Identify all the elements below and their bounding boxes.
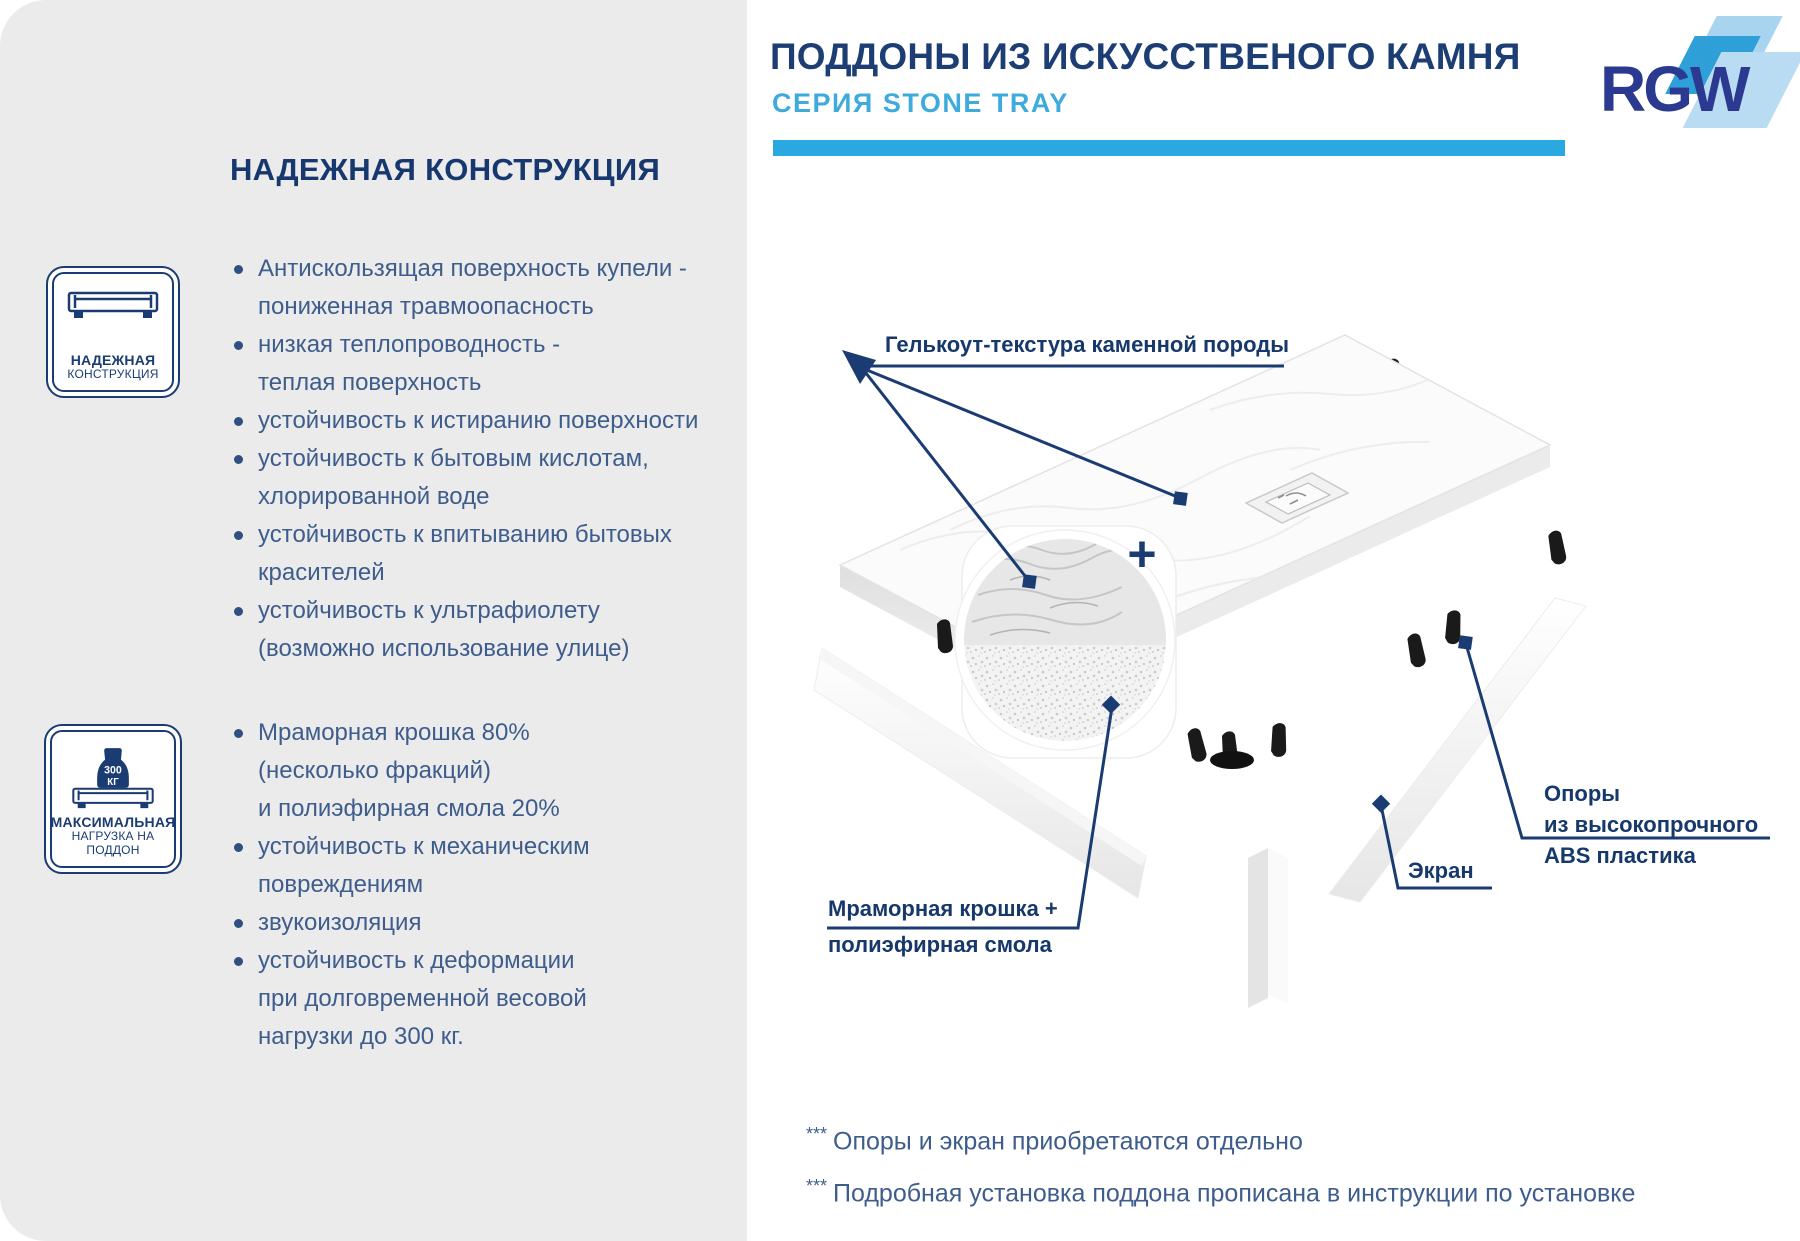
feature-item: низкая теплопроводность - теплая поверхн… [228, 326, 708, 402]
footnote-2: ***Подробная установка поддона прописана… [806, 1176, 1635, 1208]
support-leg [1187, 727, 1208, 763]
max-load-badge-inner: 300 КГ МАКСИМАЛЬНАЯ НАГРУЗКА НА П [50, 730, 176, 868]
label-marble-chips: Мраморная крошка + полиэфирная смола [828, 894, 1058, 960]
badge1-line2: КОНСТРУКЦИЯ [67, 368, 158, 382]
weight-300kg-icon: 300 КГ [63, 742, 163, 814]
label-screen: Экран [1408, 856, 1474, 886]
feature-list-construction: Антискользящая поверхность купели - пони… [228, 250, 708, 668]
weight-unit-text: КГ [107, 777, 119, 788]
accent-bar [773, 140, 1565, 156]
feature-item: звукоизоляция [228, 904, 708, 942]
tray-profile-icon [66, 284, 160, 324]
footnote-1: ***Опоры и экран приобретаются отдельно [806, 1124, 1303, 1156]
reliable-construction-badge-inner: НАДЕЖНАЯ КОНСТРУКЦИЯ [52, 272, 174, 392]
support-leg [1270, 722, 1289, 757]
support-leg [1548, 530, 1567, 565]
left-panel: НАДЕЖНАЯ КОНСТРУКЦИЯ НАДЕЖНАЯ КОНСТРУКЦИ… [0, 0, 747, 1241]
feature-item: Мраморная крошка 80% (несколько фракций)… [228, 714, 708, 828]
max-load-badge-text: МАКСИМАЛЬНАЯ НАГРУЗКА НА ПОДДОН [51, 814, 176, 858]
reliable-construction-badge: НАДЕЖНАЯ КОНСТРУКЦИЯ [46, 266, 180, 398]
page-subtitle: СЕРИЯ STONE TRAY [772, 88, 1069, 119]
support-foot [1210, 731, 1254, 769]
feature-item: устойчивость к механическим повреждениям [228, 828, 708, 904]
feature-list-material: Мраморная крошка 80% (несколько фракций)… [228, 714, 708, 1056]
rgw-logo: RGW [1598, 12, 1790, 132]
screen-corner-pillar [1248, 848, 1288, 1008]
reliable-construction-badge-text: НАДЕЖНАЯ КОНСТРУКЦИЯ [67, 352, 158, 382]
feature-item: устойчивость к впитыванию бытовых красит… [228, 516, 708, 592]
infographic-page: НАДЕЖНАЯ КОНСТРУКЦИЯ НАДЕЖНАЯ КОНСТРУКЦИ… [0, 0, 1800, 1241]
badge2-line2: НАГРУЗКА НА ПОДДОН [51, 830, 176, 858]
feature-item: устойчивость к деформации при долговреме… [228, 942, 708, 1056]
feature-item: устойчивость к бытовым кислотам, хлориро… [228, 440, 708, 516]
badge1-line1: НАДЕЖНАЯ [67, 352, 158, 368]
badge2-line1: МАКСИМАЛЬНАЯ [51, 814, 176, 830]
feature-item: устойчивость к ультрафиолету (возможно и… [228, 592, 708, 668]
logo-text: RGW [1600, 52, 1747, 126]
feature-item: устойчивость к истиранию поверхности [228, 402, 708, 440]
texture-zoom-inset: + [955, 526, 1176, 758]
left-heading: НАДЕЖНАЯ КОНСТРУКЦИЯ [230, 152, 660, 188]
plus-icon: + [1127, 526, 1156, 582]
label-abs-supports: Опоры из высокопрочного ABS пластика [1544, 778, 1758, 871]
label-gelcoat: Гелькоут-текстура каменной породы [872, 330, 1302, 360]
weight-value-text: 300 [104, 765, 122, 777]
support-leg [1407, 633, 1426, 668]
feature-item: Антискользящая поверхность купели - пони… [228, 250, 708, 326]
page-title: ПОДДОНЫ ИЗ ИСКУССТВЕНОГО КАМНЯ [770, 36, 1521, 78]
max-load-badge: 300 КГ МАКСИМАЛЬНАЯ НАГРУЗКА НА П [44, 724, 182, 874]
